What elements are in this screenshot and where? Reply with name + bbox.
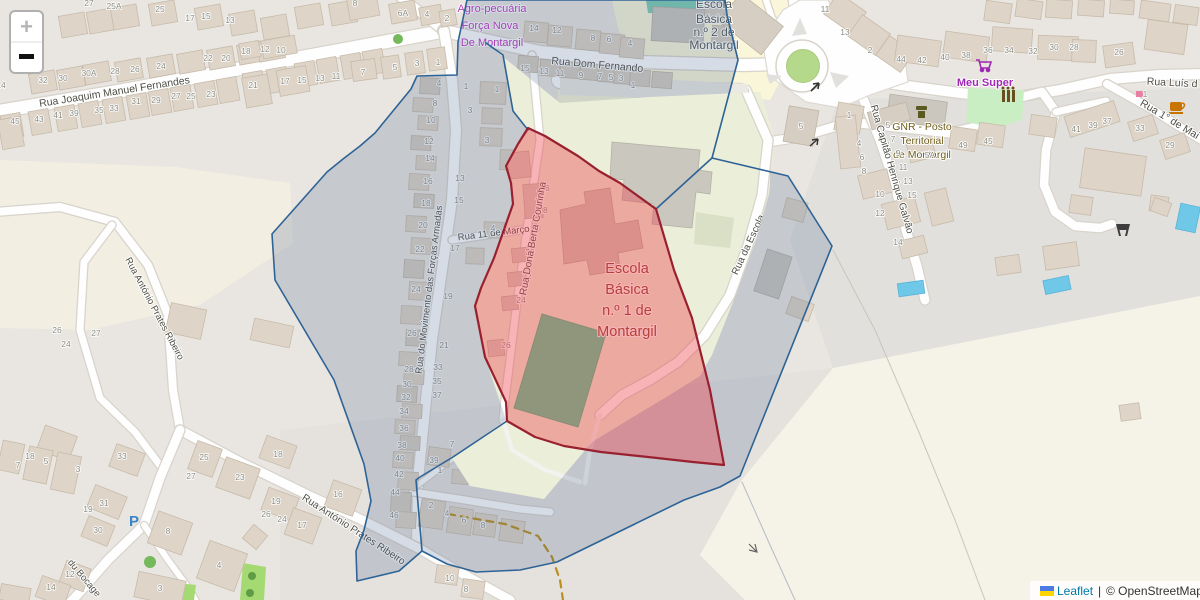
- svg-text:40: 40: [940, 52, 950, 62]
- svg-text:42: 42: [917, 55, 927, 65]
- svg-text:22: 22: [203, 53, 213, 63]
- svg-text:8: 8: [166, 526, 171, 536]
- svg-text:13: 13: [903, 176, 913, 186]
- svg-text:24: 24: [156, 61, 166, 71]
- svg-text:25: 25: [186, 91, 196, 101]
- svg-text:23: 23: [235, 472, 245, 482]
- svg-text:4: 4: [857, 138, 862, 148]
- svg-text:1: 1: [1143, 89, 1148, 99]
- svg-text:23: 23: [206, 89, 216, 99]
- svg-text:3: 3: [158, 583, 163, 593]
- svg-text:14: 14: [46, 582, 56, 592]
- svg-text:4: 4: [217, 560, 222, 570]
- svg-text:49: 49: [958, 140, 968, 150]
- svg-text:7: 7: [891, 134, 896, 144]
- svg-text:26: 26: [1114, 47, 1124, 57]
- svg-text:35: 35: [94, 105, 104, 115]
- svg-text:39: 39: [69, 108, 79, 118]
- svg-text:41: 41: [53, 110, 63, 120]
- svg-text:12: 12: [65, 569, 75, 579]
- svg-text:45: 45: [10, 116, 20, 126]
- svg-text:Leaflet: Leaflet: [1057, 584, 1094, 598]
- svg-text:25: 25: [199, 452, 209, 462]
- svg-text:33: 33: [1135, 123, 1145, 133]
- svg-text:27: 27: [186, 471, 196, 481]
- svg-text:1: 1: [847, 110, 852, 120]
- svg-text:37: 37: [1102, 116, 1112, 126]
- svg-text:24: 24: [61, 339, 71, 349]
- svg-text:6A: 6A: [398, 8, 409, 18]
- svg-text:32: 32: [38, 75, 48, 85]
- svg-text:31: 31: [131, 96, 141, 106]
- svg-text:24: 24: [277, 514, 287, 524]
- svg-text:13: 13: [315, 73, 325, 83]
- svg-text:26: 26: [52, 325, 62, 335]
- svg-text:29: 29: [1165, 140, 1175, 150]
- svg-text:30: 30: [58, 73, 68, 83]
- svg-text:28: 28: [1069, 42, 1079, 52]
- svg-text:14: 14: [0, 80, 6, 90]
- svg-text:25: 25: [155, 4, 165, 14]
- svg-text:+: +: [20, 14, 33, 39]
- svg-text:5: 5: [799, 121, 804, 131]
- svg-text:39: 39: [1088, 120, 1098, 130]
- svg-text:16: 16: [333, 489, 343, 499]
- svg-text:GNR - Posto: GNR - Posto: [892, 121, 952, 133]
- svg-text:7: 7: [16, 460, 21, 470]
- svg-text:31: 31: [99, 498, 109, 508]
- svg-text:27: 27: [91, 328, 101, 338]
- svg-text:18: 18: [25, 451, 35, 461]
- svg-text:14: 14: [893, 237, 903, 247]
- svg-text:7: 7: [361, 67, 366, 77]
- svg-text:41: 41: [1071, 124, 1081, 134]
- svg-text:27: 27: [171, 91, 181, 101]
- svg-text:5: 5: [393, 62, 398, 72]
- svg-text:4: 4: [425, 9, 430, 19]
- svg-text:13: 13: [840, 27, 850, 37]
- svg-text:33: 33: [117, 451, 127, 461]
- svg-text:13: 13: [225, 15, 235, 25]
- svg-text:5A: 5A: [925, 150, 936, 160]
- svg-text:8: 8: [464, 584, 469, 594]
- svg-text:17: 17: [280, 76, 290, 86]
- svg-text:10: 10: [276, 45, 286, 55]
- svg-text:34: 34: [1004, 45, 1014, 55]
- svg-text:45: 45: [983, 136, 993, 146]
- svg-text:9: 9: [896, 148, 901, 158]
- svg-text:18: 18: [273, 449, 283, 459]
- svg-text:12: 12: [875, 208, 885, 218]
- svg-text:15: 15: [907, 190, 917, 200]
- svg-text:10: 10: [445, 573, 455, 583]
- svg-text:30: 30: [93, 525, 103, 535]
- svg-text:6: 6: [860, 152, 865, 162]
- svg-text:25A: 25A: [106, 1, 121, 11]
- svg-text:38: 38: [961, 50, 971, 60]
- svg-text:30: 30: [1049, 42, 1059, 52]
- svg-text:2: 2: [445, 13, 450, 23]
- svg-text:8: 8: [353, 0, 358, 8]
- svg-text:11: 11: [821, 4, 830, 14]
- svg-text:28: 28: [110, 66, 120, 76]
- svg-text:43: 43: [34, 114, 44, 124]
- svg-text:15: 15: [297, 75, 307, 85]
- svg-text:26: 26: [130, 64, 140, 74]
- svg-text:21: 21: [248, 80, 258, 90]
- svg-text:de Montargil: de Montargil: [893, 149, 951, 161]
- svg-text:10: 10: [875, 189, 885, 199]
- svg-text:12: 12: [260, 44, 270, 54]
- svg-text:33: 33: [109, 103, 119, 113]
- svg-text:32: 32: [1028, 46, 1038, 56]
- svg-text:17: 17: [185, 13, 195, 23]
- svg-text:Meu Super: Meu Super: [957, 77, 1014, 89]
- svg-text:1: 1: [436, 57, 441, 67]
- svg-text:19: 19: [271, 496, 281, 506]
- svg-text:36: 36: [983, 45, 993, 55]
- svg-text:8: 8: [862, 166, 867, 176]
- svg-text:3: 3: [76, 464, 81, 474]
- svg-text:44: 44: [896, 54, 906, 64]
- svg-text:P: P: [129, 513, 139, 530]
- svg-text:© OpenStreetMap: © OpenStreetMap: [1106, 584, 1200, 598]
- svg-text:2: 2: [868, 45, 873, 55]
- svg-text:11: 11: [899, 162, 908, 172]
- svg-text:20: 20: [221, 53, 231, 63]
- svg-text:3: 3: [415, 58, 420, 68]
- svg-text:5: 5: [44, 456, 49, 466]
- svg-text:11: 11: [332, 71, 341, 81]
- svg-text:26: 26: [261, 509, 271, 519]
- svg-text:17: 17: [297, 520, 307, 530]
- svg-text:|: |: [1098, 584, 1101, 598]
- svg-text:5: 5: [886, 120, 891, 130]
- svg-text:18: 18: [241, 46, 251, 56]
- svg-text:29: 29: [151, 95, 161, 105]
- svg-text:Territorial: Territorial: [900, 135, 943, 147]
- svg-text:27: 27: [84, 0, 94, 8]
- svg-text:30A: 30A: [81, 68, 96, 78]
- svg-text:19: 19: [83, 504, 93, 514]
- svg-text:15: 15: [201, 11, 211, 21]
